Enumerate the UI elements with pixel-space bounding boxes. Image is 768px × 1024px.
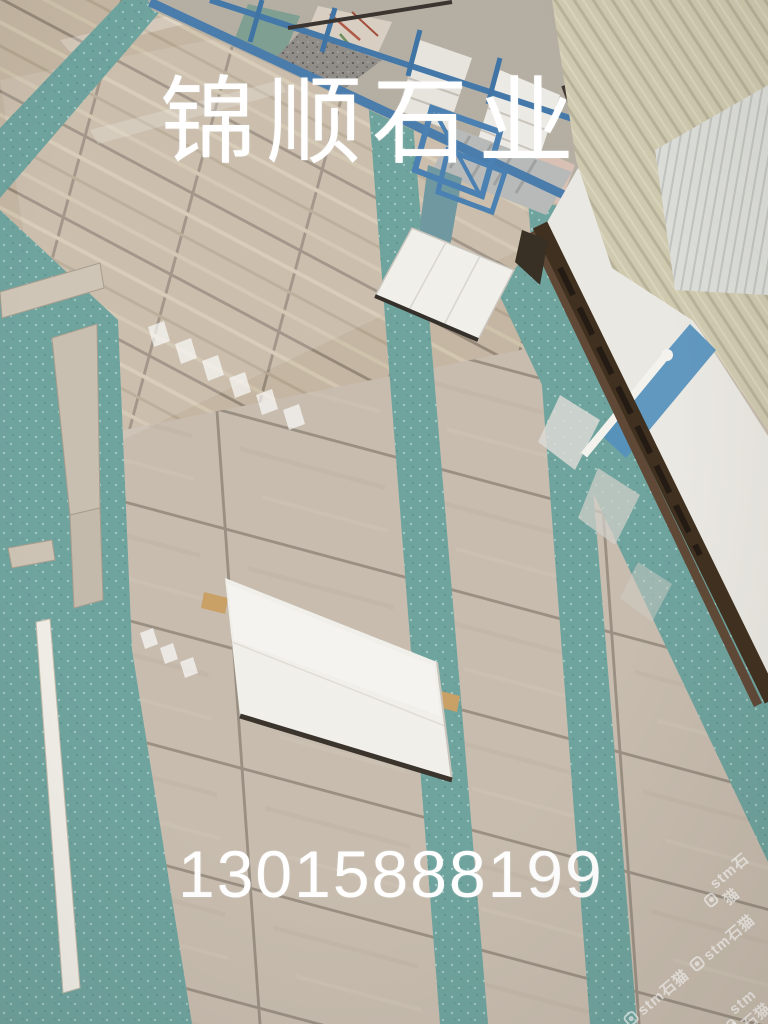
company-name-overlay: 锦顺石业 xyxy=(160,44,584,183)
factory-photo: 锦顺石业 13015888199 stm石猫 stm石猫 stm石猫 stm石猫 xyxy=(0,0,768,1024)
phone-number-overlay: 13015888199 xyxy=(178,836,604,912)
watermark-logo-icon xyxy=(622,1009,640,1024)
